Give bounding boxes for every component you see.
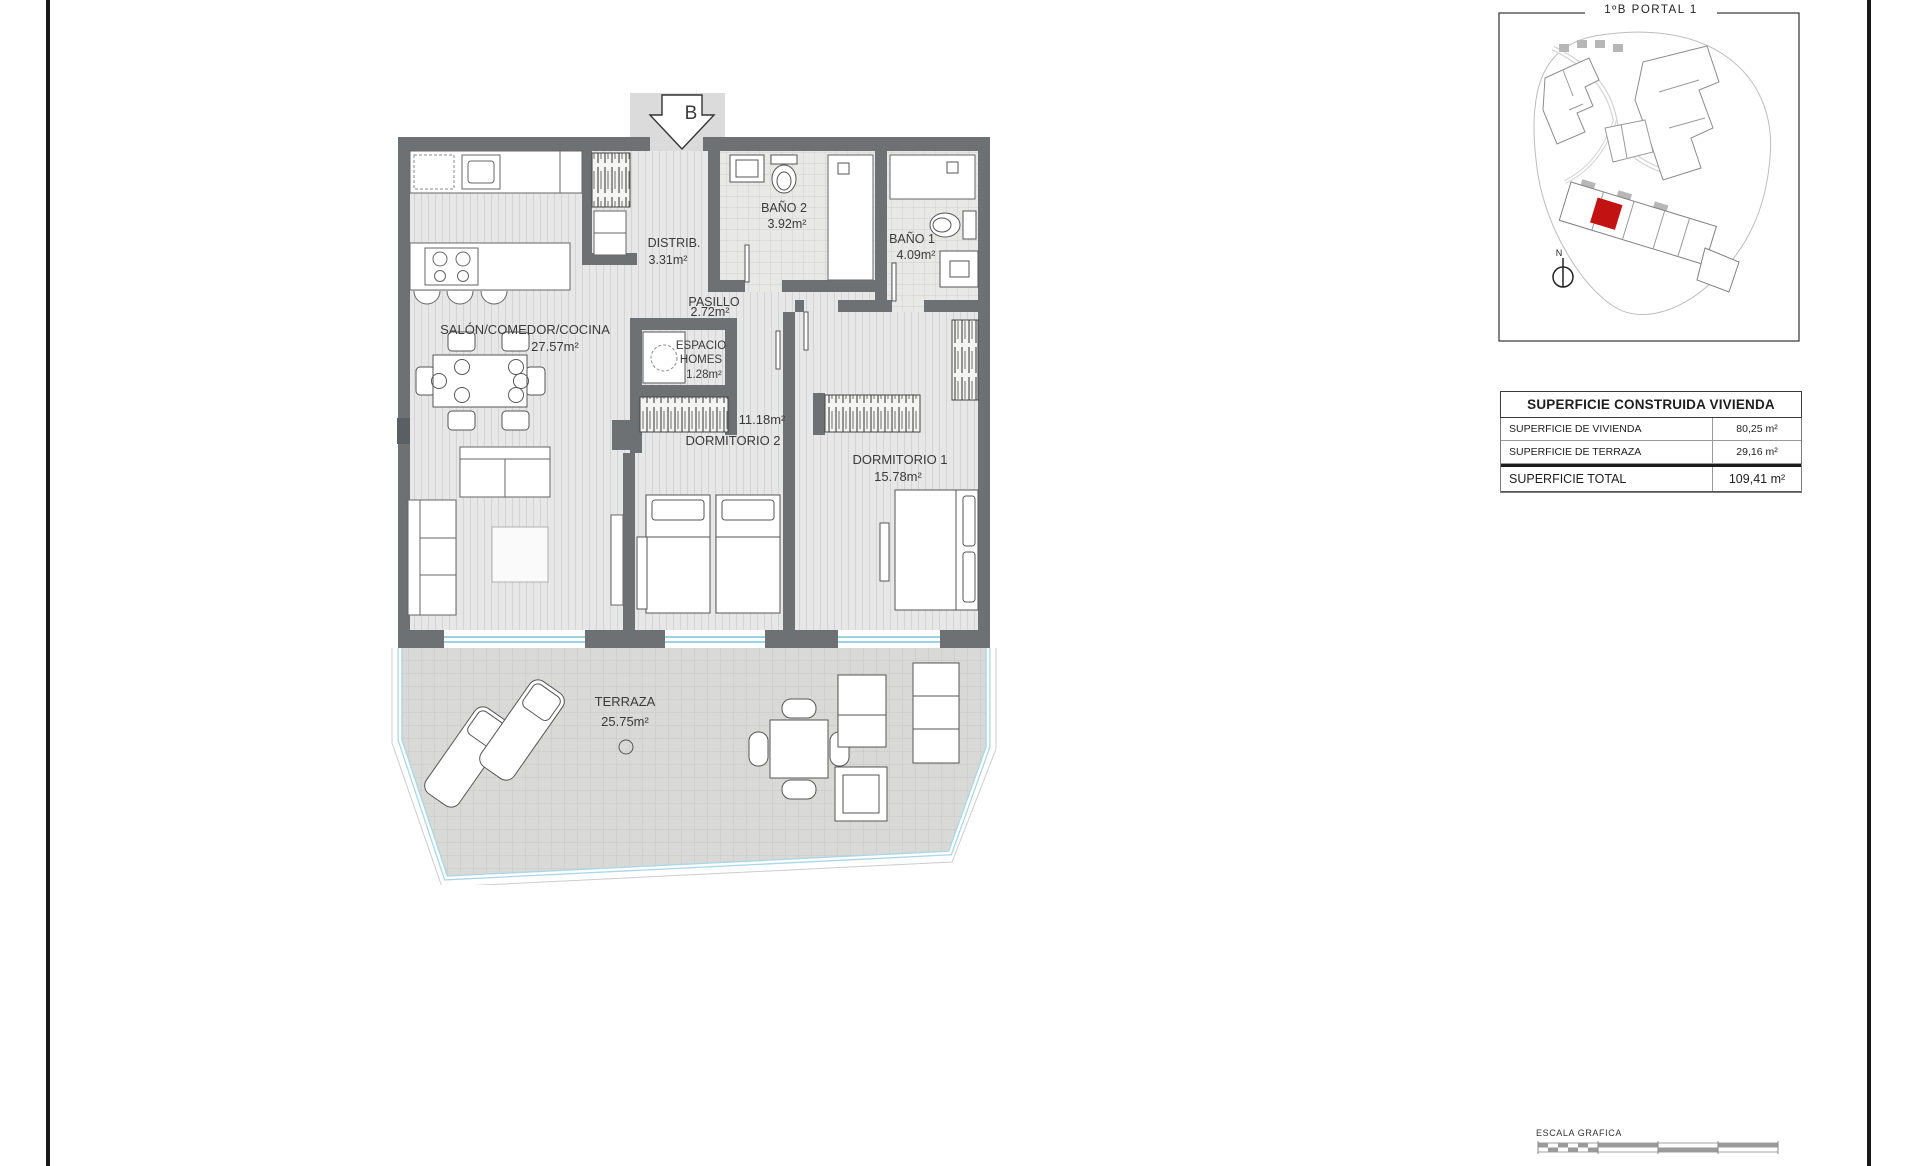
label-espacio-2: HOMES — [680, 354, 723, 366]
tv-unit — [611, 515, 623, 605]
table-row-total: SUPERFICIE TOTAL 109,41 m² — [1501, 464, 1801, 492]
bedroom1-wardrobe — [825, 395, 920, 432]
label-distrib: DISTRIB. — [648, 236, 701, 250]
total-label: SUPERFICIE TOTAL — [1501, 467, 1712, 491]
label-terraza: TERRAZA — [595, 694, 656, 709]
north-compass: N — [1553, 248, 1573, 287]
label-terraza-area: 25.75m² — [601, 714, 649, 729]
site-sketch — [1534, 32, 1771, 314]
sink — [730, 155, 764, 182]
table-row: SUPERFICIE DE TERRAZA 29,16 m² — [1501, 441, 1801, 464]
building-d — [1697, 248, 1739, 292]
bedroom2-furniture — [637, 495, 780, 613]
pillow — [963, 552, 975, 602]
terrace-table — [770, 720, 828, 778]
hall-closet — [592, 153, 630, 207]
terrace-windows — [444, 632, 940, 646]
area-table: SUPERFICIE CONSTRUIDA VIVIENDA SUPERFICI… — [1500, 391, 1802, 493]
toilet-tank — [963, 211, 976, 239]
row-label: SUPERFICIE DE TERRAZA — [1501, 441, 1712, 463]
area-table-header: SUPERFICIE CONSTRUIDA VIVIENDA — [1500, 391, 1802, 418]
scale-bar-graphic — [1536, 1140, 1782, 1158]
armchair — [838, 675, 886, 747]
scale-bar-label: ESCALA GRAFICA — [1536, 1128, 1782, 1138]
sink — [940, 251, 978, 287]
page-border-right — [1867, 0, 1871, 1166]
label-dorm2-area: 11.18m² — [739, 412, 786, 427]
pillow — [963, 496, 975, 546]
area-table-body: SUPERFICIE DE VIVIENDA 80,25 m² SUPERFIC… — [1500, 418, 1802, 493]
label-espacio-area: 1.28m² — [686, 369, 722, 381]
row-value: 29,16 m² — [1712, 441, 1801, 463]
building-a — [1543, 58, 1599, 144]
label-espacio-1: ESPACIO — [676, 340, 726, 352]
label-bano1: BAÑO 1 — [889, 232, 935, 246]
shower — [890, 155, 975, 199]
label-salon-area: 27.57m² — [531, 339, 579, 354]
label-dorm1: DORMITORIO 1 — [852, 452, 947, 467]
scale-bar: ESCALA GRAFICA — [1536, 1128, 1782, 1163]
table-row: SUPERFICIE DE VIVIENDA 80,25 m² — [1501, 418, 1801, 441]
bedroom1-furniture — [880, 490, 978, 610]
outdoor-sofa — [913, 663, 959, 763]
sideboard — [637, 537, 647, 609]
site-plan-title: 1ºB PORTAL 1 — [1604, 4, 1698, 16]
row-label: SUPERFICIE DE VIVIENDA — [1501, 418, 1712, 440]
bathroom1-door — [892, 263, 896, 301]
rug — [492, 527, 548, 582]
building-subject — [1559, 176, 1718, 264]
left-wall-window — [397, 418, 410, 444]
fridge — [560, 151, 582, 193]
sofa — [408, 500, 456, 615]
label-bano2: BAÑO 2 — [761, 201, 807, 215]
label-distrib-area: 3.31m² — [649, 253, 688, 267]
pillow — [722, 500, 774, 520]
bedroom2-door — [776, 331, 780, 369]
bedroom2-wardrobe — [640, 397, 728, 432]
label-dorm1-area: 15.78m² — [874, 469, 922, 484]
total-value: 109,41 m² — [1712, 467, 1801, 491]
building-c — [1605, 120, 1653, 162]
label-pasillo-area: 2.72m² — [691, 305, 730, 319]
entrance-marker-label: B — [685, 103, 698, 124]
bench — [880, 523, 889, 581]
kitchen-island — [410, 243, 570, 290]
row-value: 80,25 m² — [1712, 418, 1801, 440]
label-salon: SALÓN/COMEDOR/COCINA — [440, 322, 610, 337]
page-border-left — [46, 0, 50, 1166]
pillow — [652, 500, 704, 520]
label-bano1-area: 4.09m² — [897, 248, 936, 262]
floor-plan: B SALÓN/COMEDOR/COCINA 27.57m² DISTRIB. … — [330, 75, 1030, 885]
dining-table — [433, 355, 527, 407]
toilet-tank — [771, 155, 797, 164]
north-label: N — [1556, 248, 1563, 258]
bathroom2-door — [745, 245, 749, 282]
label-dorm2: DORMITORIO 2 — [685, 433, 780, 448]
shower — [828, 155, 873, 280]
site-plan: 1ºB PORTAL 1 N — [1493, 0, 1809, 348]
bedroom1-door — [804, 312, 808, 350]
toilet — [772, 165, 796, 193]
bedroom1-closet — [952, 320, 978, 400]
label-bano2-area: 3.92m² — [768, 217, 807, 231]
building-b — [1635, 46, 1719, 180]
